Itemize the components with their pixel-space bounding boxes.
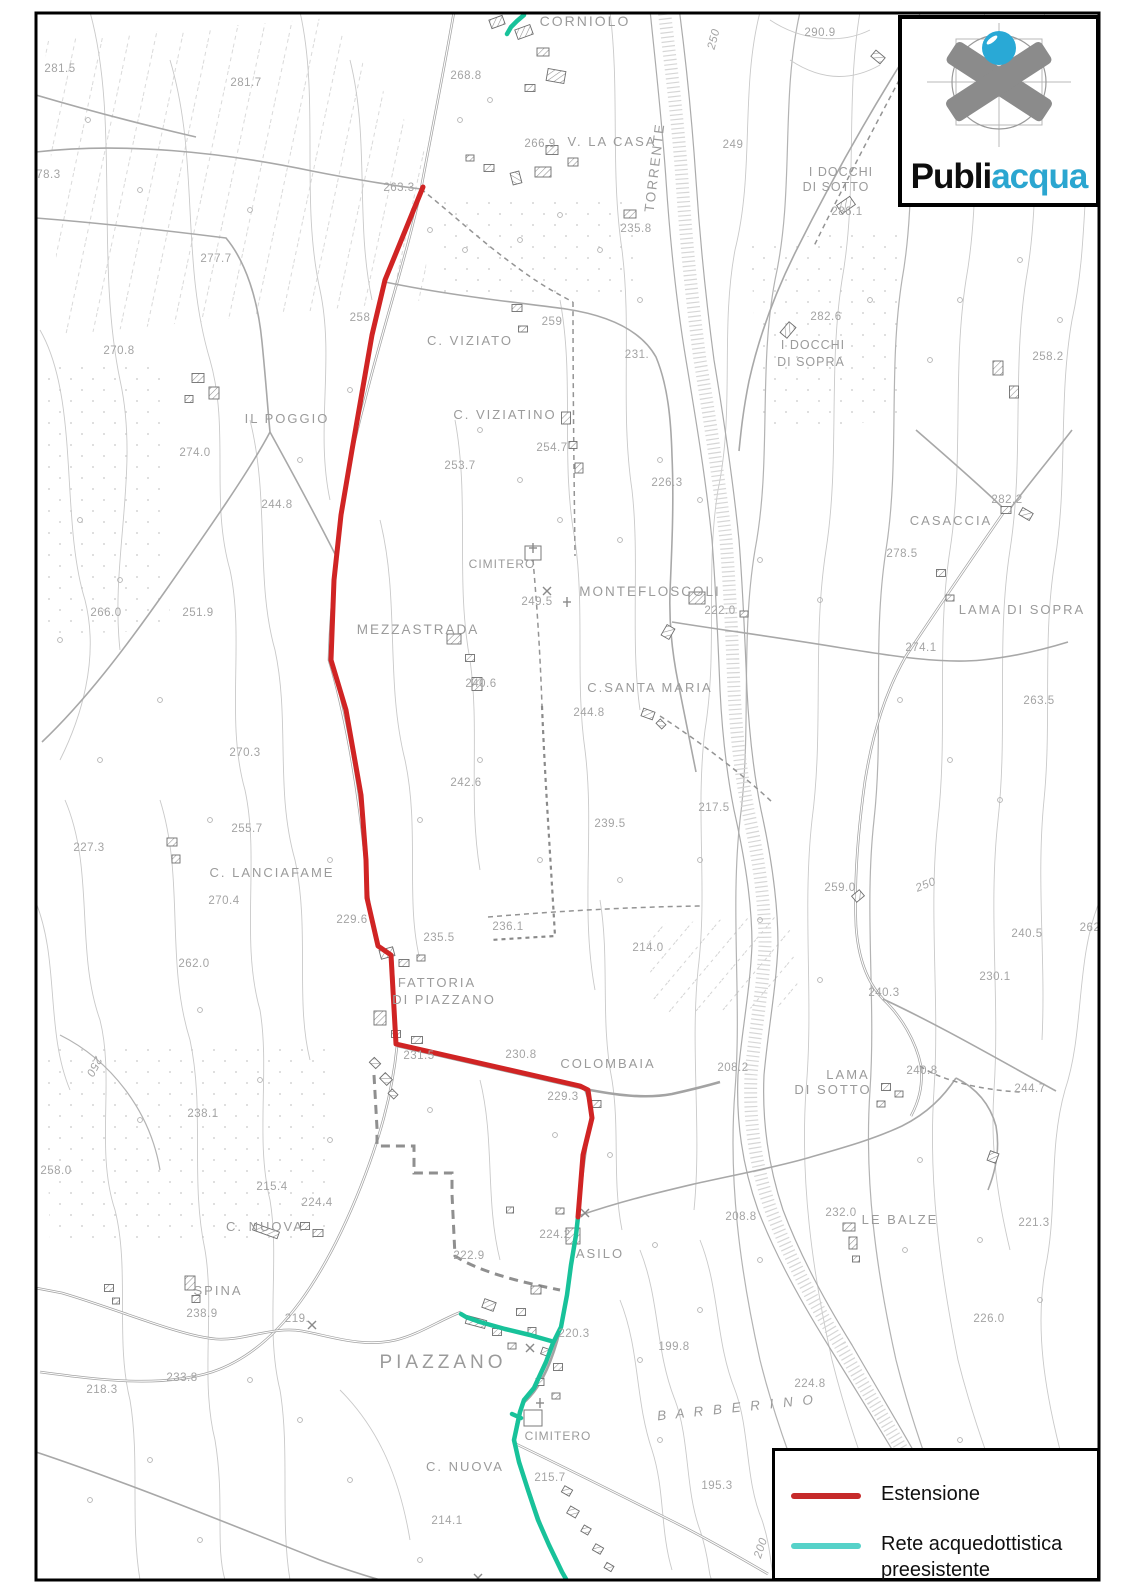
building bbox=[568, 158, 578, 166]
map-label: SPINA bbox=[193, 1283, 242, 1298]
map-label: ASILO bbox=[576, 1246, 624, 1261]
map-label: 258.0 bbox=[40, 1165, 71, 1177]
map-label: 229.6 bbox=[336, 914, 367, 926]
map-label: COLOMBAIA bbox=[560, 1056, 655, 1071]
building bbox=[882, 1084, 891, 1091]
building bbox=[412, 1037, 423, 1044]
map-label: 249 bbox=[723, 139, 744, 151]
map-label: 222.9 bbox=[453, 1250, 484, 1262]
building bbox=[466, 655, 475, 662]
map-label: 231. bbox=[625, 349, 649, 361]
map-label: DI PIAZZANO bbox=[392, 992, 496, 1007]
map-label: 262 bbox=[1080, 922, 1101, 934]
building bbox=[537, 48, 549, 56]
map-label: 229.3 bbox=[547, 1091, 578, 1103]
building bbox=[313, 1230, 323, 1237]
building bbox=[209, 387, 219, 399]
building bbox=[399, 960, 409, 967]
map-label: 240.8 bbox=[906, 1065, 937, 1077]
building bbox=[374, 1011, 386, 1025]
map-label: 262.0 bbox=[178, 958, 209, 970]
building bbox=[554, 1364, 563, 1371]
building bbox=[484, 165, 494, 172]
legend-swatch-estensione bbox=[791, 1493, 861, 1499]
building bbox=[937, 570, 946, 577]
building bbox=[853, 1256, 860, 1262]
map-label: 224.4 bbox=[301, 1197, 332, 1209]
map-label: 236.1 bbox=[492, 921, 523, 933]
map-label: 217.5 bbox=[698, 802, 729, 814]
map-label: 224.8 bbox=[794, 1378, 825, 1390]
map-label: 226.0 bbox=[973, 1313, 1004, 1325]
building bbox=[535, 167, 551, 177]
map-label: 222.0 bbox=[704, 605, 735, 617]
map-label: 235.8 bbox=[620, 223, 651, 235]
building bbox=[105, 1285, 114, 1292]
building bbox=[1001, 507, 1011, 514]
map-label: 238.1 bbox=[187, 1108, 218, 1120]
building bbox=[531, 1286, 541, 1294]
map-label: V. LA CASA bbox=[568, 134, 657, 149]
map-label: I DOCCHI bbox=[809, 165, 873, 179]
map-label: 240.6 bbox=[465, 678, 496, 690]
map-label: 258.2 bbox=[1032, 351, 1063, 363]
map-label: 226.3 bbox=[651, 477, 682, 489]
map-label: CORNIOLO bbox=[540, 13, 631, 29]
map-label: 199.8 bbox=[658, 1341, 689, 1353]
map-label: 215.7 bbox=[534, 1472, 565, 1484]
map-label: LAMA DI SOPRA bbox=[959, 602, 1085, 617]
map-label: 286.1 bbox=[831, 206, 862, 218]
building bbox=[466, 155, 474, 161]
map-label: 263.3 bbox=[383, 182, 414, 194]
map-label: 258 bbox=[350, 312, 371, 324]
logo-box: Publiacqua bbox=[898, 15, 1100, 207]
building bbox=[546, 69, 566, 84]
map-label: 270.3 bbox=[229, 747, 260, 759]
map-label: C. NUOVA bbox=[226, 1219, 304, 1234]
building bbox=[740, 611, 748, 617]
building bbox=[624, 210, 636, 218]
map-label: 242.6 bbox=[450, 777, 481, 789]
building bbox=[113, 1298, 120, 1304]
map-label: 240.3 bbox=[868, 987, 899, 999]
map-label: MEZZASTRADA bbox=[357, 622, 480, 637]
map-label: 227.3 bbox=[73, 842, 104, 854]
map-label: 259.0 bbox=[824, 882, 855, 894]
legend-box: Estensione Rete acquedottistica preesist… bbox=[772, 1448, 1100, 1581]
map-label: 230.1 bbox=[979, 971, 1010, 983]
map-label: DI SOTTO bbox=[794, 1082, 871, 1097]
building bbox=[517, 1309, 526, 1316]
map-label: CIMITERO bbox=[525, 1429, 592, 1443]
building bbox=[575, 463, 583, 473]
figure-head bbox=[982, 31, 1016, 65]
map-label: 232.0 bbox=[825, 1207, 856, 1219]
logo-wordmark: Publiacqua bbox=[902, 157, 1096, 197]
map-label: 281.7 bbox=[230, 77, 261, 89]
map-label: IL POGGIO bbox=[245, 411, 330, 426]
publiacqua-icon bbox=[902, 19, 1096, 151]
map-label: 240.5 bbox=[1011, 928, 1042, 940]
map-label: 282.2 bbox=[991, 494, 1022, 506]
map-label: LAMA bbox=[826, 1067, 869, 1082]
map-label: 214.1 bbox=[431, 1515, 462, 1527]
map-label: 218.3 bbox=[86, 1384, 117, 1396]
building bbox=[172, 855, 180, 863]
map-label: 244.7 bbox=[1014, 1083, 1045, 1095]
map-label: DI SOTTO bbox=[803, 180, 870, 194]
legend-swatch-rete bbox=[791, 1543, 861, 1549]
topographic-map: CORNIOLO290.9281.5268.8281.7250266.9V. L… bbox=[0, 0, 1132, 1589]
building bbox=[849, 1237, 857, 1249]
map-label: MONTEFLOSCOLI bbox=[579, 584, 721, 599]
map-label: 278.5 bbox=[886, 548, 917, 560]
map-label: 251.9 bbox=[182, 607, 213, 619]
map-label: 238.9 bbox=[186, 1308, 217, 1320]
map-label: 233.8 bbox=[166, 1372, 197, 1384]
map-label: 244.8 bbox=[573, 707, 604, 719]
building bbox=[185, 396, 193, 403]
map-page: { "colors": { "estensione": "#d02424", "… bbox=[0, 0, 1132, 1589]
map-label: 254.7 bbox=[536, 442, 567, 454]
map-label: 277.7 bbox=[200, 253, 231, 265]
building bbox=[895, 1091, 903, 1097]
building bbox=[525, 85, 535, 92]
legend-label-estensione: Estensione bbox=[881, 1481, 1091, 1507]
map-label: 208.8 bbox=[725, 1211, 756, 1223]
map-label: 281.5 bbox=[44, 63, 75, 75]
map-label: CASACCIA bbox=[910, 513, 992, 528]
building bbox=[569, 442, 577, 449]
map-label: C.SANTA MARIA bbox=[587, 680, 712, 695]
map-label: 270.4 bbox=[208, 895, 239, 907]
map-label: PIAZZANO bbox=[379, 1352, 506, 1373]
building bbox=[519, 326, 528, 332]
map-label: LE BALZE bbox=[862, 1212, 939, 1227]
map-label: I DOCCHI bbox=[781, 338, 845, 352]
map-label: C. VIZIATO bbox=[427, 333, 513, 348]
map-label: C. LANCIAFAME bbox=[210, 865, 335, 880]
map-label: 219. bbox=[285, 1313, 309, 1325]
map-label: 266.9 bbox=[524, 138, 555, 150]
building bbox=[417, 955, 425, 961]
building bbox=[508, 1343, 516, 1349]
map-label: 274.0 bbox=[179, 447, 210, 459]
map-label: 239.5 bbox=[594, 818, 625, 830]
map-label: 235.5 bbox=[423, 932, 454, 944]
map-label: 215.4 bbox=[256, 1181, 287, 1193]
map-label: 266.0 bbox=[90, 607, 121, 619]
map-label: 282.6 bbox=[810, 311, 841, 323]
building bbox=[552, 1393, 560, 1399]
map-label: 231.5 bbox=[403, 1050, 434, 1062]
logo-text-black: Publi bbox=[911, 157, 992, 196]
map-label: 244.8 bbox=[261, 499, 292, 511]
building bbox=[877, 1101, 885, 1107]
map-label: C. NUOVA bbox=[426, 1459, 504, 1474]
map-label: 214.0 bbox=[632, 942, 663, 954]
map-label: 270.8 bbox=[103, 345, 134, 357]
building bbox=[512, 305, 522, 312]
map-label: 195.3 bbox=[701, 1480, 732, 1492]
map-label: 224.2 bbox=[539, 1229, 570, 1241]
map-label: 268.8 bbox=[450, 70, 481, 82]
building bbox=[556, 1208, 564, 1214]
legend-label-rete: Rete acquedottistica preesistente bbox=[881, 1531, 1091, 1583]
map-label: 290.9 bbox=[804, 27, 835, 39]
map-label: 253.7 bbox=[444, 460, 475, 472]
map-label: 220.3 bbox=[558, 1328, 589, 1340]
building bbox=[1010, 386, 1019, 398]
map-label: 230.8 bbox=[505, 1049, 536, 1061]
map-label: 263.5 bbox=[1023, 695, 1054, 707]
building bbox=[993, 361, 1003, 375]
map-label: CIMITERO bbox=[469, 557, 536, 571]
logo-text-teal: acqua bbox=[991, 157, 1087, 196]
map-label: 259 bbox=[542, 316, 563, 328]
map-label: 255.7 bbox=[231, 823, 262, 835]
map-label: 208.2 bbox=[717, 1062, 748, 1074]
building bbox=[843, 1223, 855, 1231]
map-label: 249.5 bbox=[521, 596, 552, 608]
map-label: 274.1 bbox=[905, 642, 936, 654]
map-label: DI SOPRA bbox=[777, 355, 845, 369]
building bbox=[562, 412, 571, 424]
map-label: FATTORIA bbox=[398, 975, 476, 990]
map-label: C. VIZIATINO bbox=[453, 407, 556, 422]
building bbox=[192, 374, 204, 383]
building bbox=[507, 1207, 514, 1213]
map-label: 221.3 bbox=[1018, 1217, 1049, 1229]
building bbox=[946, 595, 954, 601]
building bbox=[167, 838, 177, 846]
